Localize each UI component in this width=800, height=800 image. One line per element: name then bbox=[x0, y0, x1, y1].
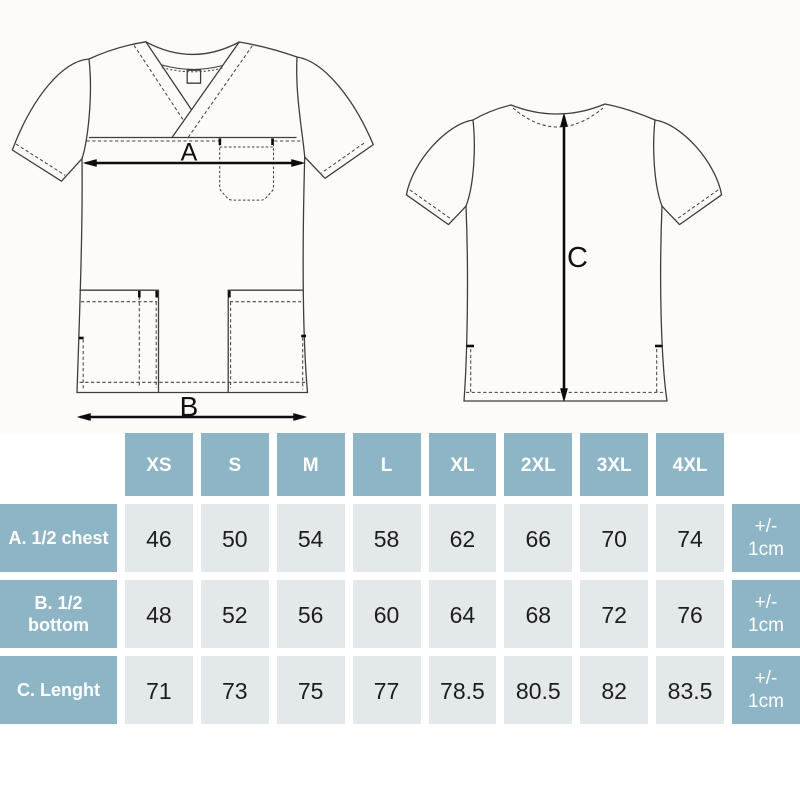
svg-text:A: A bbox=[181, 139, 198, 167]
svg-text:C: C bbox=[567, 242, 588, 274]
svg-text:B: B bbox=[180, 391, 199, 422]
